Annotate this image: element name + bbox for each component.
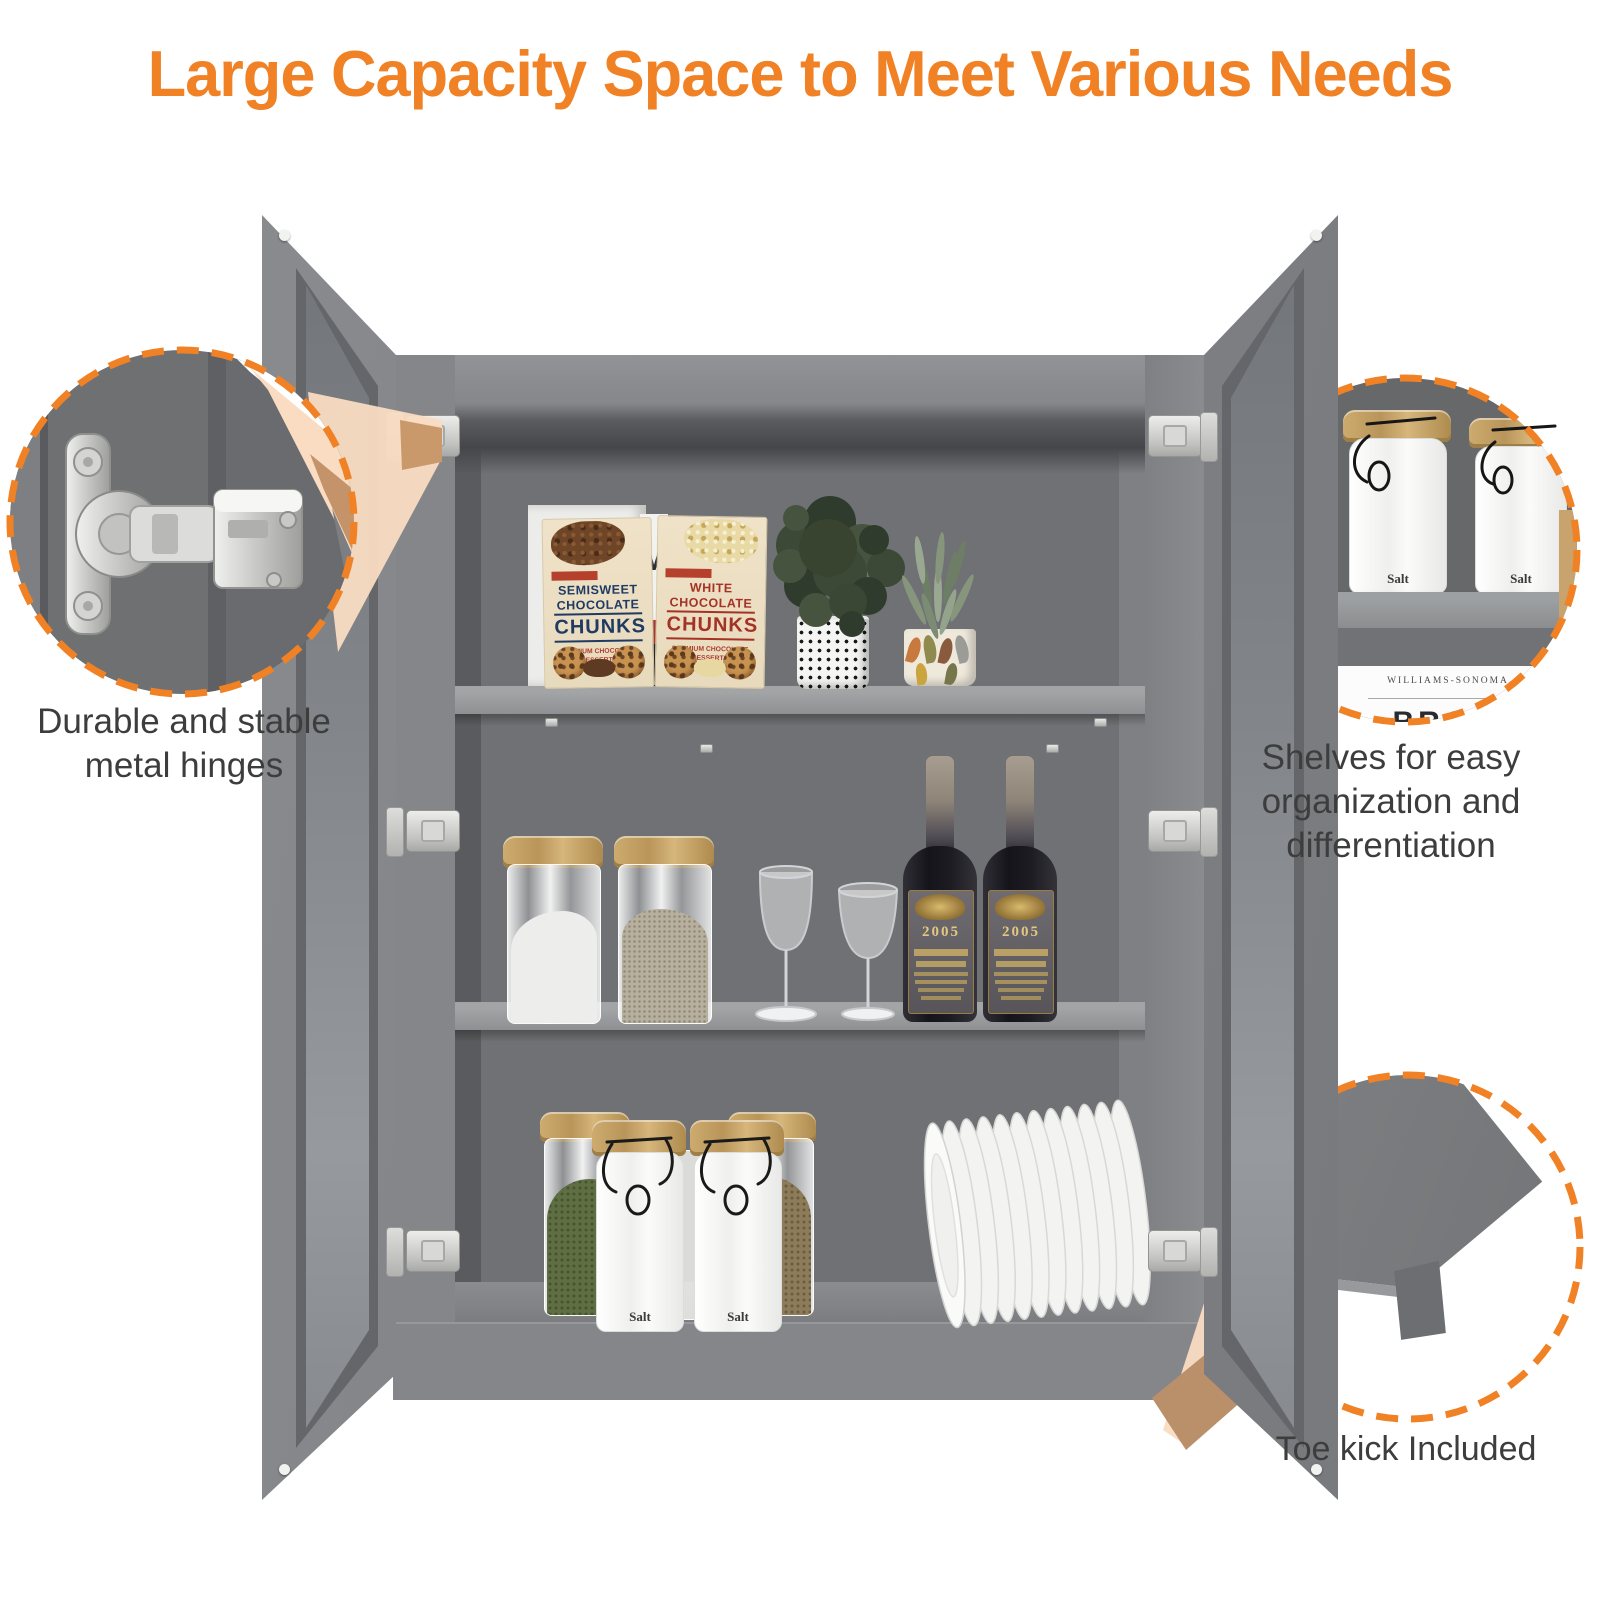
hinge-slot [421, 820, 445, 842]
product-infographic: Large Capacity Space to Meet Various Nee… [0, 0, 1600, 1600]
box-title-line: CHUNKS [554, 612, 642, 643]
leaf-motif [905, 636, 923, 664]
label-text-bar [915, 980, 967, 984]
salt-canister: Salt [1349, 438, 1447, 594]
hinge-slot [421, 1240, 445, 1262]
hinge-cup [386, 1227, 404, 1277]
wine-label: 2005 [908, 890, 974, 1014]
label-text-bar [921, 996, 961, 1000]
wine-year: 2005 [989, 924, 1053, 941]
pantry-box: WILLIAMS-SONOMA BROW [1323, 666, 1573, 722]
door-edge-groove [40, 350, 48, 694]
interior-ceiling-shadow [455, 448, 1145, 474]
canister-grain [618, 864, 712, 1024]
canister-flour [507, 864, 601, 1024]
page-title: Large Capacity Space to Meet Various Nee… [24, 36, 1576, 111]
canister-contents-grain [622, 909, 708, 1023]
shelves-caption: Shelves for easy organization and differ… [1226, 736, 1556, 868]
hinge-arm [1148, 1230, 1202, 1272]
label-text-bar [998, 988, 1044, 992]
box-title-line: SEMISWEET [544, 582, 652, 598]
bottle-neck [1006, 756, 1034, 856]
door-screw-dot [1311, 230, 1322, 241]
wine-label: 2005 [988, 890, 1054, 1014]
wine-bottle: 2005 [983, 756, 1057, 1022]
label-text-bar [996, 961, 1046, 967]
door-screw-dot [279, 1464, 290, 1475]
cookie-art [664, 645, 698, 679]
plant-pot-leaf-print [904, 629, 976, 686]
cabinet-top-face [393, 355, 1207, 448]
interior-right-wall [1119, 448, 1145, 1282]
label-emblem [915, 894, 965, 920]
hinge-cup [1200, 807, 1218, 857]
door-screw-dot [279, 230, 290, 241]
shelf-lower-shadow [455, 1030, 1145, 1042]
hinge-caption: Durable and stable metal hinges [0, 700, 368, 788]
salt-jar-lid [592, 1120, 686, 1156]
shelf-upper [455, 686, 1145, 714]
leaf-motif [915, 662, 929, 685]
hinge-slot [1163, 425, 1187, 447]
label-text-bar [918, 988, 964, 992]
wine-year: 2005 [909, 924, 973, 941]
plant-pot-checkered [797, 616, 869, 689]
salt-jar-label: Salt [597, 1309, 683, 1325]
toekick-caption: Toe kick Included [1236, 1428, 1576, 1471]
box-title-line: CHOCOLATE [544, 597, 652, 613]
shelf-pin [1046, 744, 1059, 753]
shelf-pin [1094, 718, 1107, 727]
label-text-bar [994, 972, 1048, 976]
hinge-cup [386, 412, 404, 462]
leaf-motif [953, 634, 971, 664]
salt-jar-label: Salt [695, 1309, 781, 1325]
pantry-box-partial-text: BROW [1323, 706, 1573, 722]
brand-badge [551, 571, 597, 581]
cabinet-bottom-rail [393, 1322, 1207, 1400]
hinge-arm [1148, 810, 1202, 852]
leaf-motif [922, 634, 939, 664]
box-title-line: WHITE [657, 580, 765, 596]
salt-canister-label: Salt [1350, 571, 1446, 587]
shelf-pin [545, 718, 558, 727]
hinge-arm [406, 1230, 460, 1272]
salt-canister-label: Salt [1476, 571, 1566, 587]
label-text-bar [914, 949, 968, 956]
salt-jar: Salt [596, 1152, 684, 1332]
hinge-arm [406, 810, 460, 852]
hinge-slot [421, 425, 445, 447]
bottle-neck [926, 756, 954, 856]
label-text-bar [916, 961, 966, 967]
label-text-bar [914, 972, 968, 976]
chocolate-box-semisweet: SEMISWEET CHOCOLATE CHUNKS PREMIUM CHOCO… [542, 517, 655, 689]
hinge-arm [1148, 415, 1202, 457]
box-title-line: CHOCOLATE [657, 595, 765, 611]
shelf-pin [700, 744, 713, 753]
salt-jar: Salt [694, 1152, 782, 1332]
salt-canister-lid [1469, 418, 1571, 448]
hinge-arm [406, 415, 460, 457]
chunk-pile [583, 659, 615, 678]
cookie-art [723, 646, 757, 680]
shelf-upper-shadow [455, 714, 1145, 726]
pantry-box-brand: WILLIAMS-SONOMA [1323, 676, 1573, 686]
door-edge-band [10, 350, 40, 694]
label-text-bar [995, 980, 1047, 984]
hinge-slot [1163, 1240, 1187, 1262]
hinge-cup [386, 807, 404, 857]
salt-canister: Salt [1475, 446, 1567, 594]
door-groove-right [208, 350, 226, 694]
hinge-detail-photo [10, 350, 354, 694]
box-title-line: CHUNKS [666, 610, 754, 641]
hinge-cup [1200, 1227, 1218, 1277]
chocolate-chunks-photo [684, 519, 759, 564]
leaf-motif [937, 637, 954, 665]
chocolate-box-white: WHITE CHOCOLATE CHUNKS PREMIUM CHOCOLATE… [655, 515, 768, 689]
interior-left-wall [455, 448, 481, 1282]
label-emblem [995, 894, 1045, 920]
label-text-bar [1001, 996, 1041, 1000]
brand-badge [665, 568, 711, 578]
hinge-slot [1163, 820, 1187, 842]
hinge-cup [1200, 412, 1218, 462]
canister-contents-white [511, 911, 597, 1023]
wine-bottle: 2005 [903, 756, 977, 1022]
leaf-motif [944, 662, 959, 686]
salt-jar-lid [690, 1120, 784, 1156]
chocolate-chunks-photo [551, 521, 626, 566]
chunk-pile [694, 659, 726, 678]
label-text-bar [994, 949, 1048, 956]
callout-circle-hinge [2, 342, 362, 702]
pantry-box-rule [1368, 698, 1528, 699]
side-box-sliver [1559, 510, 1577, 620]
